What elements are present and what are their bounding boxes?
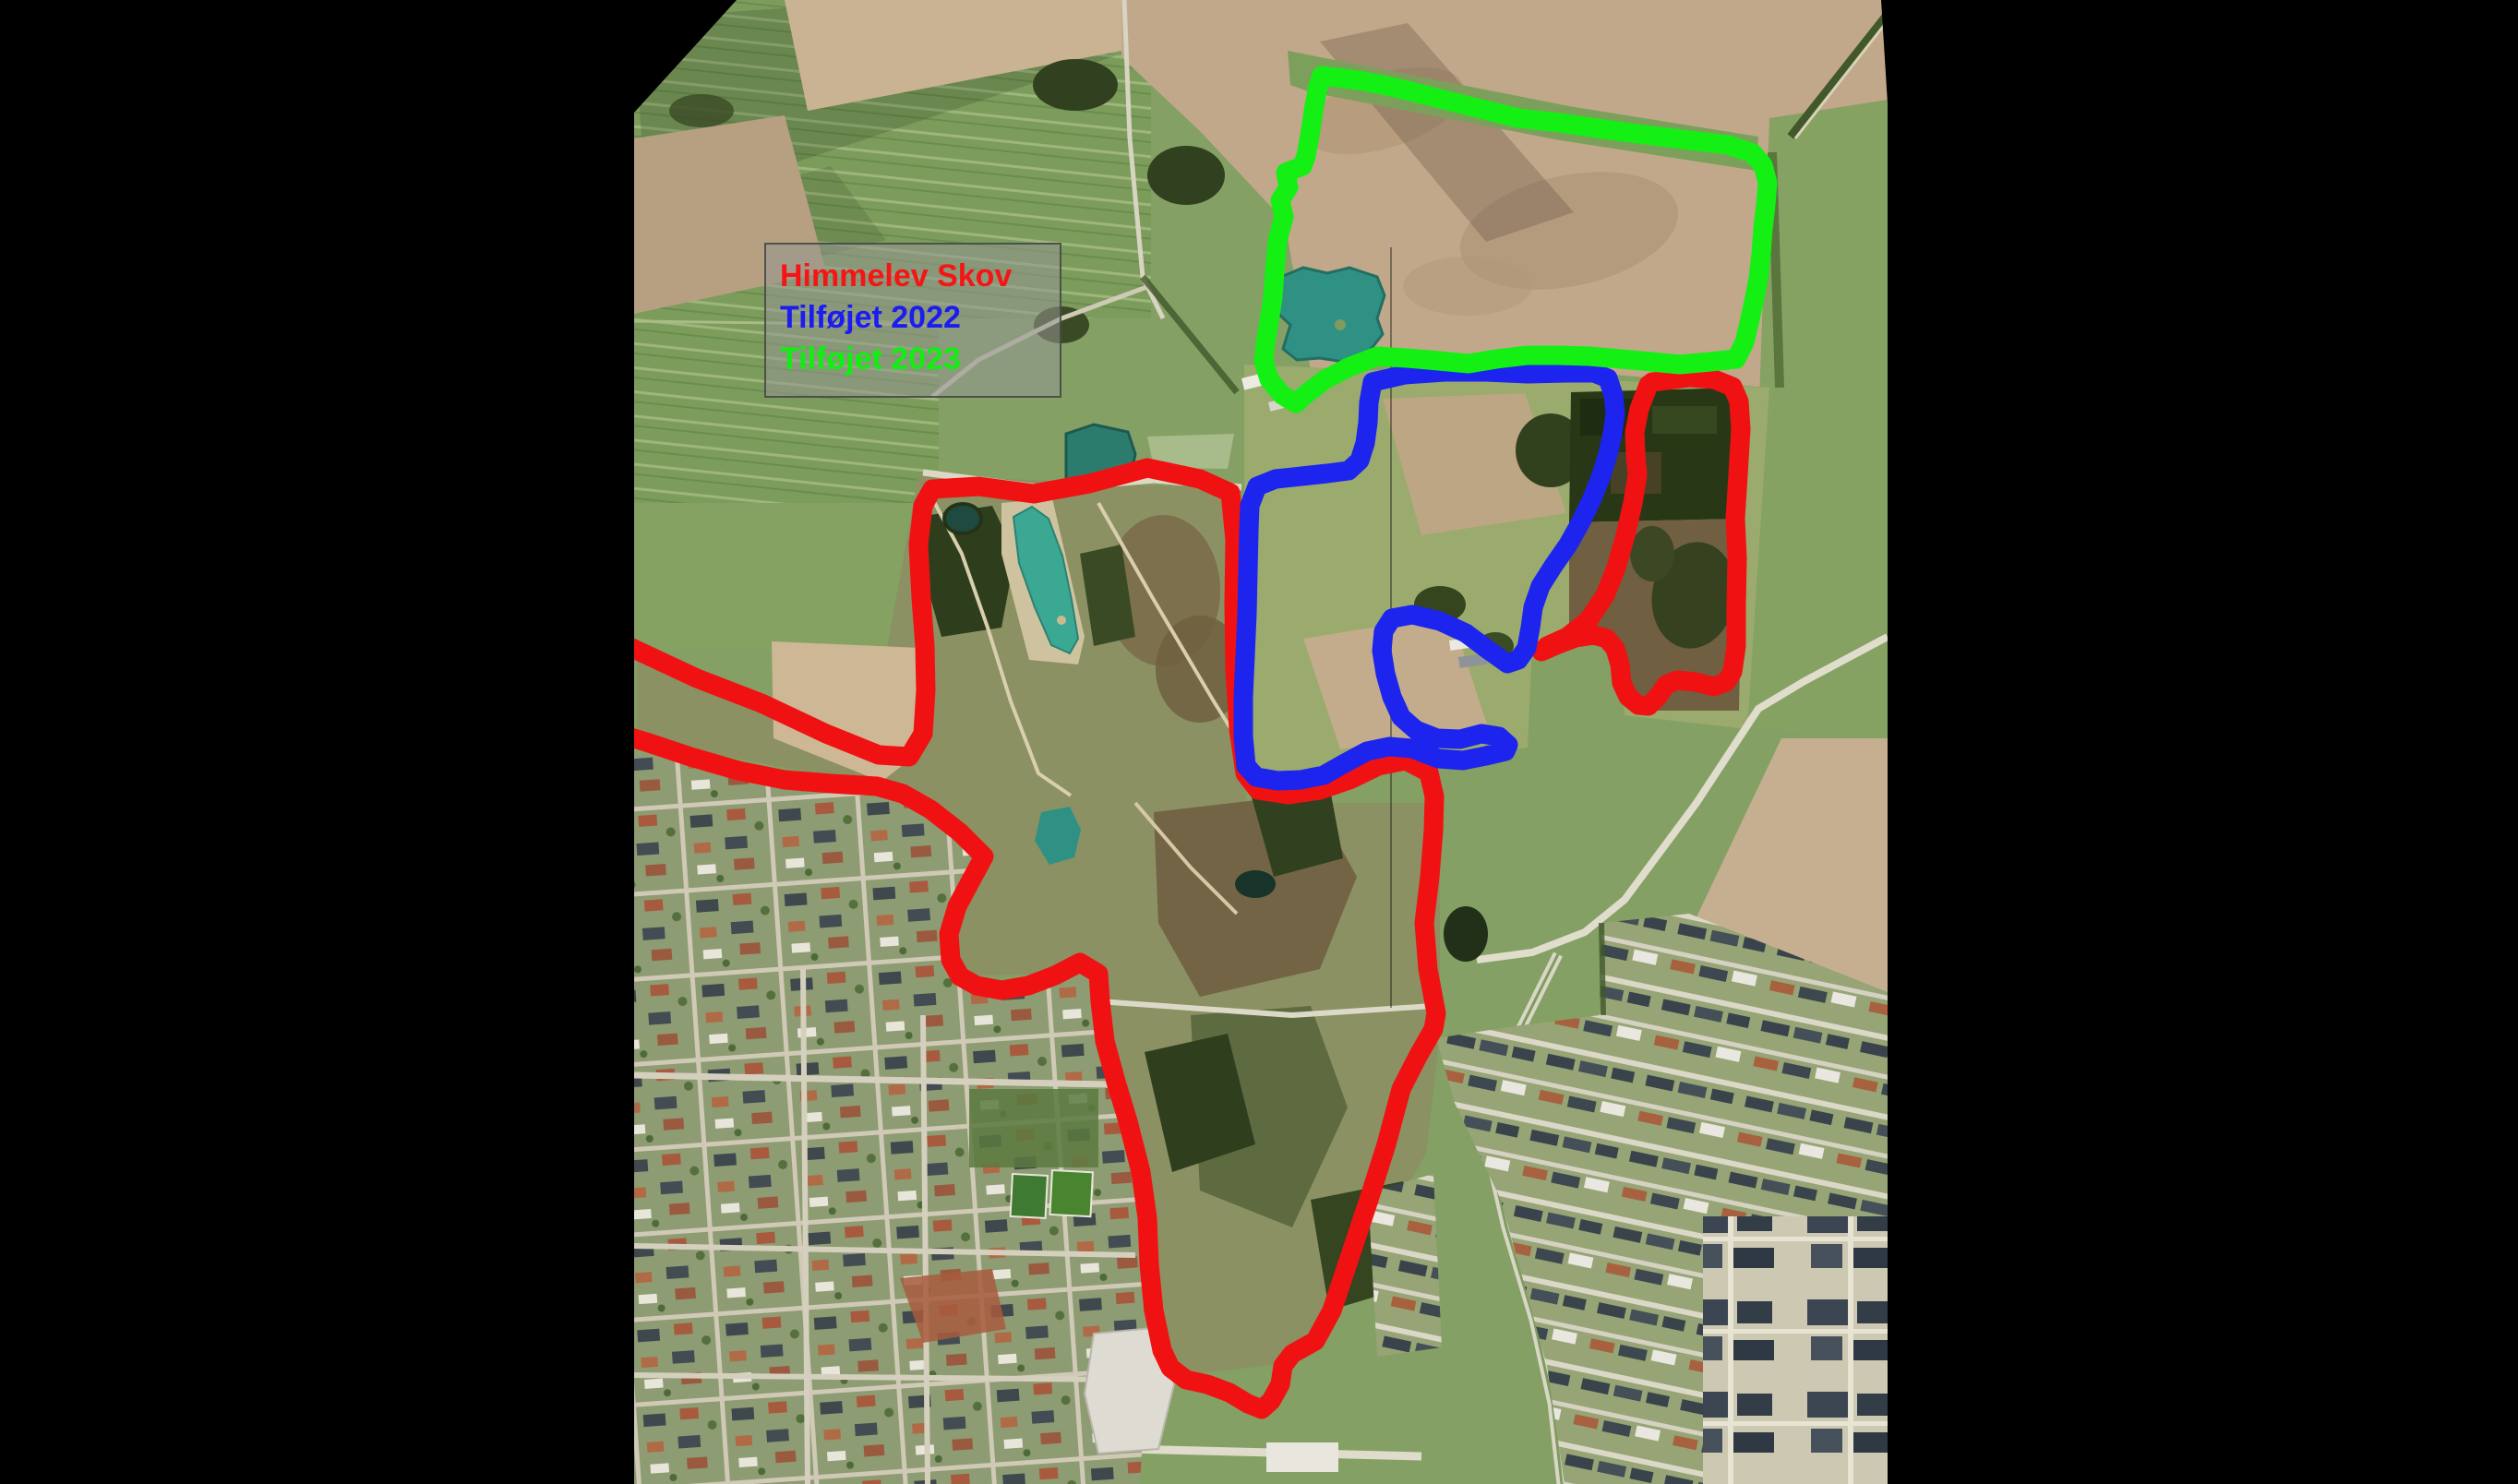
- left-black-bar: [0, 0, 634, 1484]
- right-black-bar: [1888, 0, 2518, 1484]
- map-legend: Himmelev Skov Tilføjet 2022 Tilføjet 202…: [764, 243, 1061, 398]
- legend-label-himmelev-skov: Himmelev Skov: [780, 256, 1060, 297]
- legend-label-tilfojet-2023: Tilføjet 2023: [780, 339, 1060, 380]
- legend-label-tilfojet-2022: Tilføjet 2022: [780, 297, 1060, 339]
- screenshot-canvas: Himmelev Skov Tilføjet 2022 Tilføjet 202…: [0, 0, 2518, 1484]
- campus-area: [1703, 1216, 1888, 1484]
- aerial-photo: [0, 0, 2518, 1484]
